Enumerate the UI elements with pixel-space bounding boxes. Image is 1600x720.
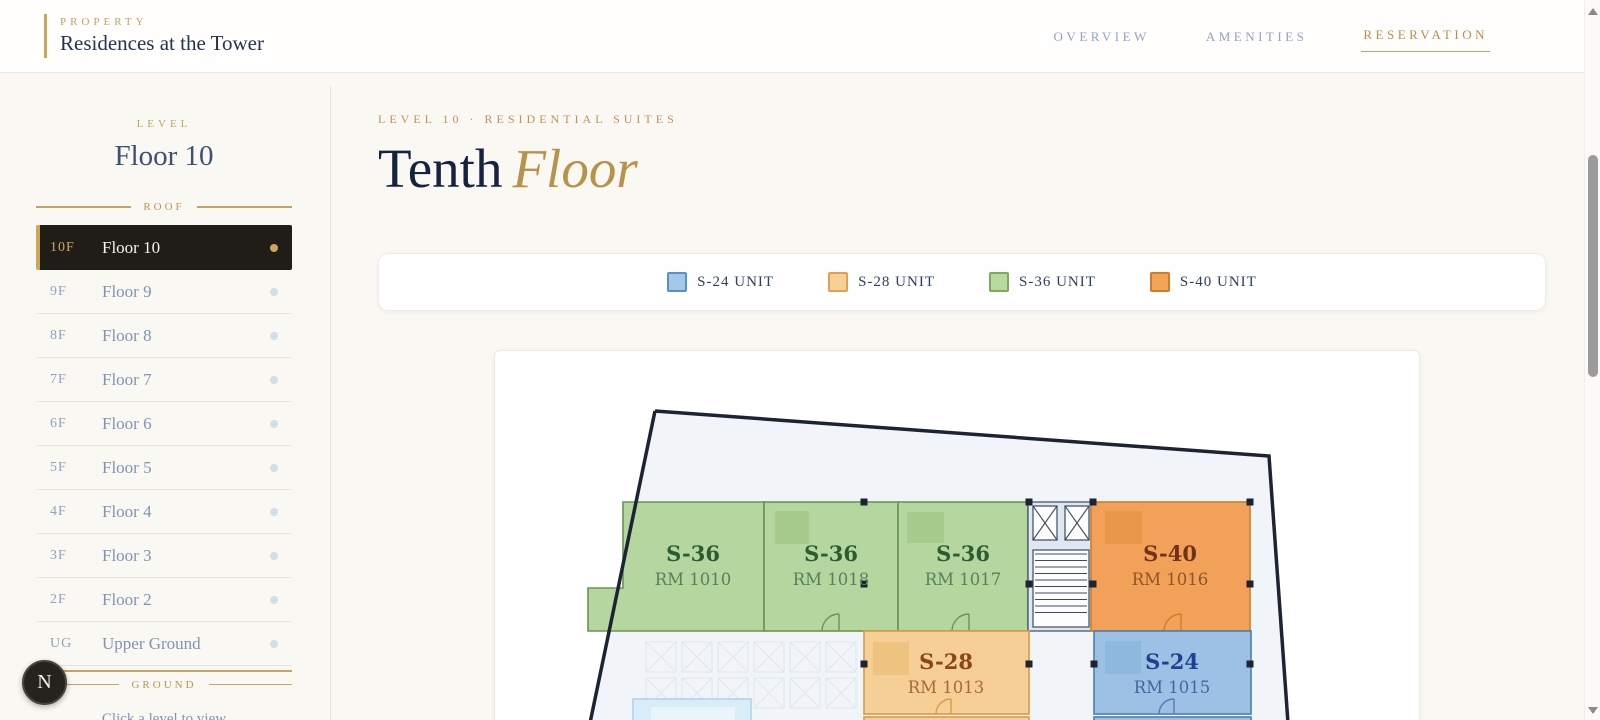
unit-s28-rm1013[interactable] — [864, 631, 1029, 720]
unit-room-label: RM 1017 — [925, 570, 1002, 589]
unit-type-label: S-36 — [936, 541, 990, 566]
floor-name: Floor 5 — [90, 458, 270, 478]
floor-name: Floor 9 — [90, 282, 270, 302]
floor-name: Floor 3 — [90, 546, 270, 566]
page: PROPERTY Residences at the Tower OVERVIE… — [0, 0, 1600, 720]
floor-item-9f[interactable]: 9F Floor 9 — [36, 270, 292, 314]
floor-name: Floor 7 — [90, 370, 270, 390]
floor-status-dot — [270, 332, 278, 340]
floor-status-dot — [270, 244, 278, 252]
s36-swatch — [989, 272, 1009, 292]
brand-eyebrow: PROPERTY — [60, 14, 264, 28]
page-heading: LEVEL 10 · RESIDENTIAL SUITES TenthFloor — [378, 112, 678, 200]
header: PROPERTY Residences at the Tower OVERVIE… — [0, 0, 1600, 73]
unit-type-label: S-28 — [919, 649, 973, 674]
north-compass-badge[interactable]: N — [22, 660, 67, 705]
floor-item-5f[interactable]: 5F Floor 5 — [36, 446, 292, 490]
title-accent: Floor — [512, 138, 637, 199]
floor-code: 8F — [50, 328, 90, 344]
floor-code: 10F — [50, 240, 90, 256]
floor-code: 4F — [50, 504, 90, 520]
floor-item-ug[interactable]: UG Upper Ground — [36, 622, 292, 666]
brand-name: Residences at the Tower — [60, 31, 264, 56]
roof-label: ROOF — [143, 201, 184, 213]
floor-status-dot — [270, 508, 278, 516]
floor-item-8f[interactable]: 8F Floor 8 — [36, 314, 292, 358]
floor-item-10f[interactable]: 10F Floor 10 — [36, 225, 292, 270]
floor-code: 6F — [50, 416, 90, 432]
floor-status-dot — [270, 288, 278, 296]
closet — [1105, 641, 1141, 674]
floor-name: Floor 4 — [90, 502, 270, 522]
s28-swatch — [828, 272, 848, 292]
ground-label: GROUND — [131, 679, 196, 691]
scrollbar-thumb[interactable] — [1588, 155, 1598, 377]
floor-name: Upper Ground — [90, 634, 270, 654]
floor-code: 3F — [50, 548, 90, 564]
floor-code: UG — [50, 636, 90, 652]
floor-item-6f[interactable]: 6F Floor 6 — [36, 402, 292, 446]
floor-status-dot — [270, 640, 278, 648]
unit-room-label: RM 1013 — [908, 678, 985, 697]
floor-status-dot — [270, 552, 278, 560]
unit-type-label: S-36 — [804, 541, 858, 566]
floor-status-dot — [270, 464, 278, 472]
floor-plan-card: S-36 RM 1010 S-36 RM 1018 S-36 RM 1017 S… — [494, 350, 1420, 720]
floor-status-dot — [270, 376, 278, 384]
floor-status-dot — [270, 420, 278, 428]
unit-type-label: S-36 — [666, 541, 720, 566]
floor-code: 7F — [50, 372, 90, 388]
sidebar-divider-line — [330, 86, 331, 720]
closet — [1105, 511, 1142, 544]
nav-overview[interactable]: OVERVIEW — [1052, 23, 1152, 51]
floor-name: Floor 6 — [90, 414, 270, 434]
legend-label: S-24 UNIT — [697, 274, 774, 291]
scroll-up-arrow-icon[interactable] — [1588, 8, 1598, 15]
floor-name: Floor 10 — [90, 238, 270, 258]
legend-item-s28: S-28 UNIT — [828, 272, 935, 292]
brand-accent-bar — [44, 14, 47, 58]
unit-s36-rm1017[interactable] — [898, 502, 1028, 631]
scroll-down-arrow-icon[interactable] — [1588, 707, 1598, 714]
unit-s36-rm1018[interactable] — [764, 502, 898, 631]
unit-s40-rm1016[interactable] — [1091, 502, 1250, 631]
floor-name: Floor 8 — [90, 326, 270, 346]
floor-code: 2F — [50, 592, 90, 608]
floor-code: 5F — [50, 460, 90, 476]
legend-label: S-36 UNIT — [1019, 274, 1096, 291]
roof-divider: ROOF — [36, 201, 292, 213]
closet — [775, 511, 809, 544]
floor-item-3f[interactable]: 3F Floor 3 — [36, 534, 292, 578]
floor-code: 9F — [50, 284, 90, 300]
legend-label: S-28 UNIT — [858, 274, 935, 291]
title-primary: Tenth — [378, 138, 502, 199]
brand[interactable]: PROPERTY Residences at the Tower — [44, 14, 264, 58]
core-elevator-stairs — [1028, 502, 1091, 631]
closet — [907, 512, 944, 543]
unit-legend: S-24 UNIT S-28 UNIT S-36 UNIT S-40 UNIT — [378, 253, 1546, 311]
legend-item-s40: S-40 UNIT — [1150, 272, 1257, 292]
legend-item-s24: S-24 UNIT — [667, 272, 774, 292]
legend-label: S-40 UNIT — [1180, 274, 1257, 291]
page-title: TenthFloor — [378, 137, 678, 200]
page-scrollbar[interactable] — [1584, 0, 1600, 720]
floor-name: Floor 2 — [90, 590, 270, 610]
floor-list: 10F Floor 10 9F Floor 9 8F Floor 8 7F Fl… — [36, 225, 292, 666]
heading-eyebrow: LEVEL 10 · RESIDENTIAL SUITES — [378, 112, 678, 127]
unit-s24-rm1015[interactable] — [1094, 631, 1251, 720]
ground-divider: GROUND — [36, 679, 292, 691]
unit-room-label: RM 1016 — [1132, 570, 1209, 589]
floor-plan-canvas: S-36 RM 1010 S-36 RM 1018 S-36 RM 1017 S… — [495, 351, 1420, 720]
unit-type-label: S-40 — [1143, 541, 1197, 566]
s24-swatch — [667, 272, 687, 292]
legend-item-s36: S-36 UNIT — [989, 272, 1096, 292]
floor-status-dot — [270, 596, 278, 604]
floor-item-4f[interactable]: 4F Floor 4 — [36, 490, 292, 534]
ground-top-line — [36, 670, 292, 672]
unit-type-label: S-24 — [1145, 649, 1199, 674]
floor-item-7f[interactable]: 7F Floor 7 — [36, 358, 292, 402]
floor-item-2f[interactable]: 2F Floor 2 — [36, 578, 292, 622]
sidebar-eyebrow: LEVEL — [36, 118, 292, 130]
unit-room-label: RM 1010 — [655, 570, 732, 589]
closet — [873, 642, 909, 675]
sidebar-current-level: Floor 10 — [36, 140, 292, 173]
s40-swatch — [1150, 272, 1170, 292]
main-nav: OVERVIEW AMENITIES RESERVATION — [1052, 0, 1490, 73]
pool — [633, 699, 751, 720]
nav-amenities[interactable]: AMENITIES — [1204, 23, 1310, 51]
unit-room-label: RM 1015 — [1134, 678, 1211, 697]
stairs-icon — [1033, 550, 1089, 627]
sidebar-hint: Click a level to view — [36, 711, 292, 720]
level-sidebar: LEVEL Floor 10 ROOF 10F Floor 10 9F Floo… — [36, 86, 292, 720]
unit-room-label: RM 1018 — [793, 570, 870, 589]
nav-reservation[interactable]: RESERVATION — [1361, 21, 1490, 52]
